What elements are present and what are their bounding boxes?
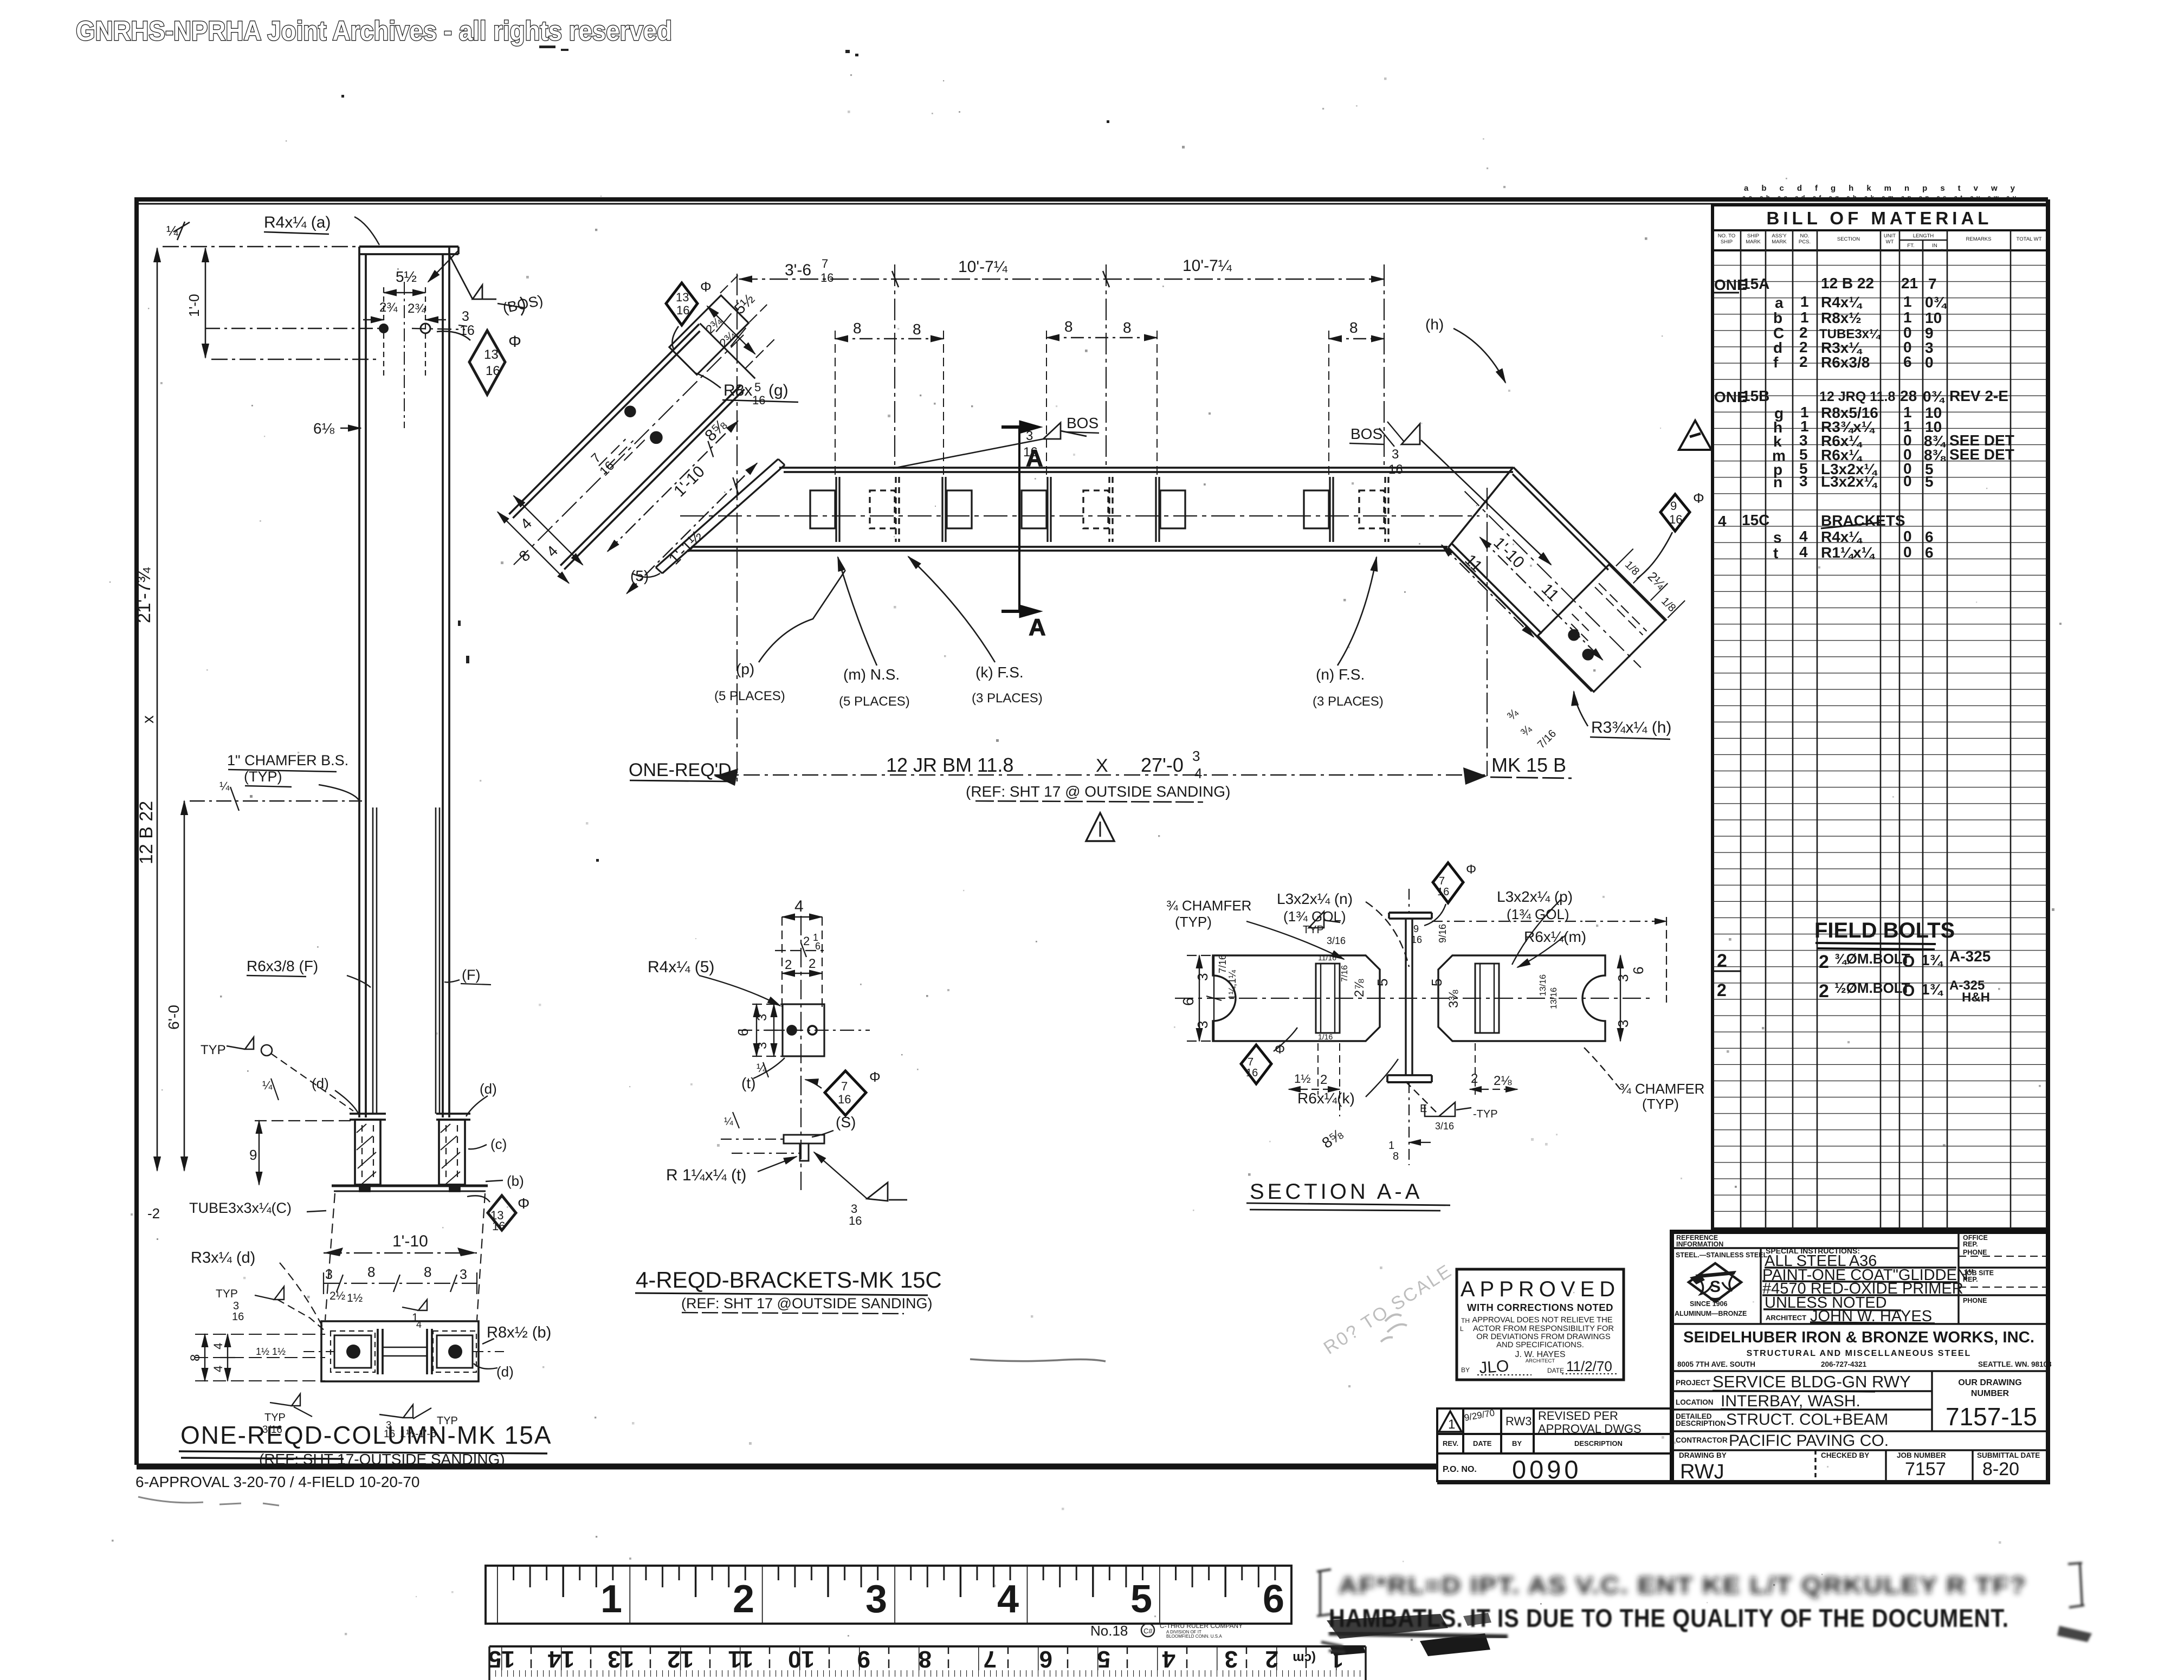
svg-text:13/16: 13/16 xyxy=(1539,974,1548,996)
svg-text:1: 1 xyxy=(1448,1417,1455,1432)
svg-text:JOHN W. HAYES: JOHN W. HAYES xyxy=(1810,1308,1932,1325)
svg-text:SINCE 1906: SINCE 1906 xyxy=(1690,1300,1728,1308)
svg-text:8: 8 xyxy=(367,1264,375,1280)
svg-text:HAMBATLS. IT IS DUE TO THE QUA: HAMBATLS. IT IS DUE TO THE QUALITY OF TH… xyxy=(1329,1604,2009,1632)
svg-text:-2: -2 xyxy=(147,1205,160,1222)
svg-text:3: 3 xyxy=(462,309,469,324)
svg-text:15C: 15C xyxy=(1742,512,1769,528)
svg-text:R8x: R8x xyxy=(723,382,752,399)
svg-text:2⅞: 2⅞ xyxy=(1352,979,1367,997)
svg-text:2½: 2½ xyxy=(329,1290,345,1302)
svg-text:3: 3 xyxy=(1026,429,1033,443)
svg-text:3: 3 xyxy=(460,1267,467,1282)
svg-text:12 B 22: 12 B 22 xyxy=(136,801,157,864)
svg-text:0: 0 xyxy=(1925,354,1934,371)
svg-text:NO. TO: NO. TO xyxy=(1718,233,1735,239)
svg-text:BOS: BOS xyxy=(1351,425,1382,442)
svg-text:16: 16 xyxy=(1437,886,1449,898)
svg-text:Φ: Φ xyxy=(508,333,521,351)
svg-text:12: 12 xyxy=(667,1646,694,1672)
svg-text:8: 8 xyxy=(1349,319,1358,336)
svg-text:PACIFIC PAVING CO.: PACIFIC PAVING CO. xyxy=(1729,1432,1889,1450)
svg-text:6: 6 xyxy=(1630,967,1646,974)
svg-text:8: 8 xyxy=(853,320,862,337)
svg-text:(5): (5) xyxy=(630,567,649,584)
svg-text:OUR DRAWING: OUR DRAWING xyxy=(1958,1378,2021,1387)
svg-text:7: 7 xyxy=(1439,875,1445,887)
svg-text:R4x¼ (a): R4x¼ (a) xyxy=(264,214,331,231)
svg-text:BY: BY xyxy=(1461,1366,1470,1374)
svg-text:BOS: BOS xyxy=(1067,415,1099,431)
svg-text:2¾: 2¾ xyxy=(408,301,426,316)
svg-text:UNIT: UNIT xyxy=(1884,233,1896,239)
svg-text:(cm: (cm xyxy=(1293,1651,1316,1665)
svg-text:12 JRQ 11.8: 12 JRQ 11.8 xyxy=(1819,389,1895,404)
svg-text:R4x¼: R4x¼ xyxy=(1821,528,1863,545)
svg-text:9/29/70: 9/29/70 xyxy=(1463,1407,1495,1423)
svg-text:1: 1 xyxy=(1903,309,1912,326)
svg-text:ARCHITECT: ARCHITECT xyxy=(1526,1358,1555,1364)
svg-text:4: 4 xyxy=(517,515,535,533)
svg-text:6⅛: 6⅛ xyxy=(313,420,335,437)
svg-text:SERVICE BLDG-GN RWY: SERVICE BLDG-GN RWY xyxy=(1713,1372,1911,1391)
svg-text:(F): (F) xyxy=(462,967,480,983)
svg-text:5: 5 xyxy=(754,380,761,394)
svg-text:6: 6 xyxy=(1263,1578,1284,1621)
svg-text:2: 2 xyxy=(1819,952,1829,972)
svg-text:REVISED PER: REVISED PER xyxy=(1538,1409,1618,1423)
svg-text:4: 4 xyxy=(1718,513,1727,529)
svg-text:14: 14 xyxy=(548,1646,574,1672)
svg-text:C-THRU RULER COMPANY: C-THRU RULER COMPANY xyxy=(1160,1622,1243,1630)
svg-text:7/16: 7/16 xyxy=(1340,965,1349,982)
svg-text:6: 6 xyxy=(815,941,820,952)
svg-text:1½: 1½ xyxy=(272,1346,286,1357)
svg-text:TYP: TYP xyxy=(216,1288,238,1300)
svg-text:4: 4 xyxy=(1162,1646,1175,1672)
svg-text:NUMBER: NUMBER xyxy=(1971,1389,2009,1398)
svg-text:10: 10 xyxy=(1925,309,1942,326)
svg-text:APPROVED: APPROVED xyxy=(1461,1277,1620,1301)
svg-text:¾ CHAMFER: ¾ CHAMFER xyxy=(1619,1081,1704,1097)
svg-text:STRUCTURAL AND MISCELLANEOUS S: STRUCTURAL AND MISCELLANEOUS STEEL xyxy=(1747,1349,1972,1358)
svg-text:3: 3 xyxy=(1392,447,1399,462)
svg-text:6: 6 xyxy=(1925,528,1934,545)
svg-text:SECTION A-A: SECTION A-A xyxy=(1250,1180,1423,1204)
svg-text:(c): (c) xyxy=(490,1136,507,1152)
svg-text:JOB NUMBER: JOB NUMBER xyxy=(1897,1451,1946,1459)
svg-text:R8x½: R8x½ xyxy=(1821,309,1862,326)
svg-text:R8x½ (b): R8x½ (b) xyxy=(487,1324,551,1341)
svg-text:2: 2 xyxy=(1320,1072,1327,1087)
svg-text:(S): (S) xyxy=(836,1114,856,1130)
svg-text:7157-15: 7157-15 xyxy=(1946,1403,2037,1431)
svg-text:L3x2x¼ (n): L3x2x¼ (n) xyxy=(1277,890,1353,907)
svg-text:R4x¼: R4x¼ xyxy=(1821,294,1863,311)
svg-text:6: 6 xyxy=(1180,997,1197,1006)
svg-text:R 1¼x¼ (t): R 1¼x¼ (t) xyxy=(666,1166,746,1184)
svg-text:Φ: Φ xyxy=(1275,1042,1285,1057)
svg-text:INFORMATION: INFORMATION xyxy=(1676,1240,1723,1248)
svg-text:16: 16 xyxy=(676,303,689,317)
svg-text:STEEL.—STAINLESS STEEL.: STEEL.—STAINLESS STEEL. xyxy=(1676,1251,1769,1259)
svg-text:5½: 5½ xyxy=(731,290,758,317)
svg-text:2: 2 xyxy=(1717,951,1727,971)
svg-text:2: 2 xyxy=(785,958,792,972)
svg-text:REMARKS: REMARKS xyxy=(1966,236,1992,242)
svg-text:SUBMITTAL DATE: SUBMITTAL DATE xyxy=(1977,1451,2040,1459)
svg-text:3'-6: 3'-6 xyxy=(785,261,811,279)
svg-text:¼: ¼ xyxy=(166,223,178,239)
svg-text:21: 21 xyxy=(1901,275,1918,292)
svg-text:LOCATION: LOCATION xyxy=(1676,1398,1714,1406)
svg-text:TOTAL WT: TOTAL WT xyxy=(2017,236,2042,242)
svg-text:(k) F.S.: (k) F.S. xyxy=(975,664,1024,681)
svg-text:TYP: TYP xyxy=(201,1043,226,1057)
svg-text:(p): (p) xyxy=(736,661,754,677)
svg-text:L: L xyxy=(1460,1325,1464,1333)
svg-text:Φ: Φ xyxy=(869,1069,881,1085)
svg-text:(REF: SHT 17-OUTSIDE SANDING): (REF: SHT 17-OUTSIDE SANDING) xyxy=(259,1451,505,1468)
svg-text:1: 1 xyxy=(1903,293,1912,310)
svg-text:1: 1 xyxy=(600,1578,622,1621)
svg-text:ARCHITECT: ARCHITECT xyxy=(1766,1314,1806,1322)
svg-text:s: s xyxy=(1773,529,1782,546)
svg-text:2: 2 xyxy=(733,1578,754,1621)
svg-text:1'-0: 1'-0 xyxy=(186,294,202,317)
svg-text:1'-10: 1'-10 xyxy=(1490,534,1528,572)
svg-text:R6x3/8 (F): R6x3/8 (F) xyxy=(247,958,318,974)
svg-text:1¼,1¼: 1¼,1¼ xyxy=(1227,970,1238,1000)
svg-text:3: 3 xyxy=(1615,974,1631,982)
svg-text:3: 3 xyxy=(1225,1646,1238,1672)
svg-text:3: 3 xyxy=(865,1578,887,1621)
svg-text:FT.: FT. xyxy=(1907,243,1914,249)
svg-text:DESCRIPTION: DESCRIPTION xyxy=(1676,1419,1726,1427)
svg-text:(1¾ GOL): (1¾ GOL) xyxy=(1283,908,1346,925)
svg-text:BILL OF MATERIAL: BILL OF MATERIAL xyxy=(1767,208,1993,228)
svg-text:8: 8 xyxy=(1064,318,1073,335)
svg-text:-TYP: -TYP xyxy=(1473,1108,1498,1120)
svg-text:BY: BY xyxy=(1512,1439,1522,1448)
svg-text:1'-10: 1'-10 xyxy=(670,462,708,500)
svg-text:3: 3 xyxy=(1194,973,1211,981)
svg-text:(TYP): (TYP) xyxy=(1642,1096,1679,1112)
svg-text:PROJECT: PROJECT xyxy=(1676,1379,1711,1387)
svg-text:JLO: JLO xyxy=(1478,1357,1509,1377)
svg-text:AND SPECIFICATIONS.: AND SPECIFICATIONS. xyxy=(1496,1341,1584,1349)
svg-text:R4x¼ (5): R4x¼ (5) xyxy=(648,958,714,976)
svg-text:7157: 7157 xyxy=(1905,1459,1946,1479)
svg-text:4: 4 xyxy=(416,1319,422,1330)
svg-text:16: 16 xyxy=(1023,445,1038,460)
svg-text:O: O xyxy=(1902,982,1915,1000)
svg-text:(d): (d) xyxy=(312,1075,329,1091)
svg-text:RW3: RW3 xyxy=(1505,1414,1532,1428)
svg-text:WITH CORRECTIONS NOTED: WITH CORRECTIONS NOTED xyxy=(1467,1302,1613,1313)
svg-text:2: 2 xyxy=(1799,353,1808,370)
svg-text:¾ØM.BOLT: ¾ØM.BOLT xyxy=(1834,951,1910,967)
svg-text:0: 0 xyxy=(1903,544,1912,560)
svg-text:APPROVAL DWGS: APPROVAL DWGS xyxy=(1538,1422,1642,1436)
svg-text:16: 16 xyxy=(1388,462,1403,477)
svg-text:6: 6 xyxy=(1903,353,1912,370)
svg-text:IN: IN xyxy=(1932,243,1937,249)
svg-text:1½: 1½ xyxy=(1294,1072,1311,1085)
svg-text:11: 11 xyxy=(1461,551,1485,576)
svg-text:ONE-REQD-COLUMN-MK 15A: ONE-REQD-COLUMN-MK 15A xyxy=(180,1421,552,1449)
svg-text:(1¾ GOL): (1¾ GOL) xyxy=(1507,906,1569,922)
svg-text:GNRHS-NPRHA Joint Archives - a: GNRHS-NPRHA Joint Archives - all rights … xyxy=(76,16,672,46)
svg-text:R3¾x¼ (h): R3¾x¼ (h) xyxy=(1591,719,1671,736)
svg-text:4: 4 xyxy=(1194,765,1202,781)
svg-text:1/8: 1/8 xyxy=(1623,559,1642,578)
svg-text:(REF: SHT 17 @ OUTSIDE SANDING: (REF: SHT 17 @ OUTSIDE SANDING) xyxy=(966,783,1230,800)
svg-text:8: 8 xyxy=(919,1646,932,1672)
svg-text:13: 13 xyxy=(484,347,499,362)
svg-text:3: 3 xyxy=(1194,1021,1211,1029)
svg-text:9/16: 9/16 xyxy=(1437,924,1448,943)
svg-text:ASS'Y: ASS'Y xyxy=(1772,233,1787,239)
svg-text:4: 4 xyxy=(794,897,804,915)
svg-text:1½: 1½ xyxy=(256,1346,269,1357)
svg-text:13/16: 13/16 xyxy=(1549,987,1559,1009)
svg-text:¼: ¼ xyxy=(219,779,230,793)
svg-text:H&H: H&H xyxy=(1962,990,1990,1005)
svg-text:(t): (t) xyxy=(741,1075,755,1091)
svg-text:2⅛: 2⅛ xyxy=(1494,1074,1512,1088)
svg-text:16: 16 xyxy=(492,1219,505,1233)
svg-text:3: 3 xyxy=(1192,748,1200,764)
svg-text:CONTRACTOR: CONTRACTOR xyxy=(1676,1436,1728,1444)
svg-text:11/16: 11/16 xyxy=(1318,953,1336,962)
svg-text:1/16: 1/16 xyxy=(1318,1032,1333,1041)
svg-text:15B: 15B xyxy=(1742,387,1769,404)
svg-text:PHONE: PHONE xyxy=(1963,1297,1987,1304)
svg-text:3: 3 xyxy=(233,1300,239,1312)
svg-text:x: x xyxy=(139,715,157,723)
svg-text:2¾: 2¾ xyxy=(717,328,739,350)
svg-text:RWJ: RWJ xyxy=(1680,1461,1724,1483)
svg-text:5: 5 xyxy=(1925,473,1934,490)
svg-text:(5 PLACES): (5 PLACES) xyxy=(839,694,910,709)
svg-text:2¾: 2¾ xyxy=(379,300,398,315)
svg-text:16: 16 xyxy=(486,364,500,378)
svg-text:10'-7¼: 10'-7¼ xyxy=(1183,257,1232,275)
svg-text:f: f xyxy=(1773,354,1779,371)
svg-text:DATE: DATE xyxy=(1473,1439,1492,1448)
svg-text:3: 3 xyxy=(1615,1020,1631,1028)
svg-text:n: n xyxy=(1773,474,1782,490)
svg-text:A-325: A-325 xyxy=(1949,948,1991,965)
svg-text:12 JR BM 11.8: 12 JR BM 11.8 xyxy=(886,754,1013,776)
svg-text:3: 3 xyxy=(755,1014,770,1021)
svg-text:SHIP: SHIP xyxy=(1721,239,1733,245)
svg-text:ALUMINUM—BRONZE: ALUMINUM—BRONZE xyxy=(1675,1310,1747,1317)
svg-text:REP.: REP. xyxy=(1963,1240,1978,1248)
svg-text:Φ: Φ xyxy=(1466,862,1476,877)
svg-text:ACTOR FROM RESPONSIBILITY FOR: ACTOR FROM RESPONSIBILITY FOR xyxy=(1473,1324,1614,1333)
svg-text:No.18: No.18 xyxy=(1090,1623,1128,1639)
svg-text:O: O xyxy=(1902,953,1915,971)
svg-text:L3x2x¼: L3x2x¼ xyxy=(1821,473,1878,490)
svg-text:R0? TO SCALE: R0? TO SCALE xyxy=(1320,1260,1456,1359)
svg-text:Φ: Φ xyxy=(700,279,712,295)
svg-text:5: 5 xyxy=(1374,979,1391,986)
svg-text:13: 13 xyxy=(608,1646,634,1672)
svg-text:¾: ¾ xyxy=(1518,722,1535,739)
svg-text:L3x2x¼ (p): L3x2x¼ (p) xyxy=(1497,888,1573,905)
svg-text:16: 16 xyxy=(849,1214,862,1227)
svg-text:Φ: Φ xyxy=(1693,490,1704,506)
svg-text:LENGTH: LENGTH xyxy=(1913,233,1934,239)
svg-text:1¾: 1¾ xyxy=(1921,981,1944,998)
svg-text:TYP: TYP xyxy=(1303,924,1324,936)
svg-text:2¾: 2¾ xyxy=(703,314,725,336)
svg-text:10: 10 xyxy=(788,1646,815,1672)
svg-text:OR DEVIATIONS FROM DRAWINGS: OR DEVIATIONS FROM DRAWINGS xyxy=(1476,1333,1611,1341)
svg-text:1: 1 xyxy=(1800,293,1809,310)
svg-text:11/2/70: 11/2/70 xyxy=(1566,1358,1612,1374)
svg-text:WT: WT xyxy=(1886,239,1894,245)
svg-text:SEATTLE. WN. 98108: SEATTLE. WN. 98108 xyxy=(1978,1360,2052,1368)
svg-text:DATE: DATE xyxy=(1547,1367,1564,1374)
svg-text:¼: ¼ xyxy=(724,1116,733,1128)
svg-text:SECTION: SECTION xyxy=(1837,236,1860,242)
svg-text:MK 15 B: MK 15 B xyxy=(1491,754,1566,776)
svg-text:4: 4 xyxy=(211,1366,225,1372)
svg-text:4-REQD-BRACKETS-MK 15C: 4-REQD-BRACKETS-MK 15C xyxy=(636,1267,942,1293)
svg-text:DESCRIPTION: DESCRIPTION xyxy=(1574,1439,1623,1448)
svg-text:R1¼x¼: R1¼x¼ xyxy=(1821,544,1876,561)
svg-text:9: 9 xyxy=(249,1147,257,1163)
svg-text:0090: 0090 xyxy=(1512,1455,1582,1484)
svg-text:2: 2 xyxy=(1471,1071,1478,1086)
svg-text:13: 13 xyxy=(676,290,689,304)
svg-text:X: X xyxy=(1096,755,1108,776)
svg-text:Φ: Φ xyxy=(518,1195,529,1212)
svg-text:16: 16 xyxy=(838,1093,851,1106)
svg-text:0¾: 0¾ xyxy=(1925,294,1948,311)
svg-text:2¼: 2¼ xyxy=(1645,569,1668,592)
svg-text:4: 4 xyxy=(1799,544,1808,560)
svg-text:A: A xyxy=(1029,614,1046,641)
svg-text:(3 PLACES): (3 PLACES) xyxy=(1313,694,1384,709)
svg-text:P.O. NO.: P.O. NO. xyxy=(1443,1465,1477,1474)
svg-text:DRAWING BY: DRAWING BY xyxy=(1679,1451,1727,1459)
svg-text:16: 16 xyxy=(820,271,833,285)
svg-text:(n) F.S.: (n) F.S. xyxy=(1316,666,1365,683)
svg-text:9: 9 xyxy=(857,1646,870,1672)
svg-text:STRUCT. COL+BEAM: STRUCT. COL+BEAM xyxy=(1726,1411,1888,1429)
svg-text:¾: ¾ xyxy=(1504,706,1521,722)
svg-text:6-APPROVAL 3-20-70 / 4-FIELD 1: 6-APPROVAL 3-20-70 / 4-FIELD 10-20-70 xyxy=(135,1474,419,1490)
svg-text:8⅝: 8⅝ xyxy=(1319,1126,1346,1152)
svg-text:PCS.: PCS. xyxy=(1799,239,1811,245)
svg-text:(d): (d) xyxy=(480,1081,497,1097)
svg-text:28: 28 xyxy=(1900,387,1917,404)
svg-text:7: 7 xyxy=(841,1080,848,1093)
svg-text:15A: 15A xyxy=(1742,275,1769,292)
svg-text:0: 0 xyxy=(1903,473,1912,489)
svg-text:(REF: SHT 17 @OUTSIDE SANDING): (REF: SHT 17 @OUTSIDE SANDING) xyxy=(681,1295,932,1311)
svg-text:1½: 1½ xyxy=(347,1292,363,1304)
svg-text:4: 4 xyxy=(211,1343,225,1349)
svg-text:0: 0 xyxy=(1903,528,1912,545)
svg-text:8: 8 xyxy=(1123,319,1132,336)
svg-text:3/16: 3/16 xyxy=(1327,935,1346,946)
svg-text:(b): (b) xyxy=(507,1173,524,1189)
svg-text:3: 3 xyxy=(1799,473,1808,489)
svg-text:11: 11 xyxy=(728,1646,753,1672)
svg-text:(d): (d) xyxy=(496,1364,514,1380)
svg-text:TUBE3x3x¼(C): TUBE3x3x¼(C) xyxy=(189,1200,292,1216)
svg-text:REV 2-E: REV 2-E xyxy=(1949,387,2008,404)
svg-text:AF*RL=D IPT. AS V.C. ENT KE L/: AF*RL=D IPT. AS V.C. ENT KE L/T QRKULEY … xyxy=(1339,1572,2027,1599)
svg-text:SEE DET: SEE DET xyxy=(1949,446,2014,463)
svg-text:SEIDELHUBER IRON & BRONZE: SEIDELHUBER IRON & BRONZE WORKS, INC. xyxy=(1683,1329,2034,1346)
svg-text:¼: ¼ xyxy=(262,1078,273,1092)
svg-text:8: 8 xyxy=(515,547,533,565)
svg-text:(h): (h) xyxy=(1425,316,1444,333)
svg-text:8005 7TH AVE. SOUTH: 8005 7TH AVE. SOUTH xyxy=(1677,1360,1755,1368)
svg-text:5: 5 xyxy=(1429,979,1445,986)
svg-text:5½: 5½ xyxy=(396,268,417,285)
svg-text:¾ CHAMFER: ¾ CHAMFER xyxy=(1166,897,1251,914)
svg-text:7/16: 7/16 xyxy=(1535,727,1559,751)
svg-text:11: 11 xyxy=(1538,580,1562,605)
svg-text:b: b xyxy=(1773,309,1782,326)
svg-text:9: 9 xyxy=(1413,923,1419,934)
svg-text:BLOOMFIELD CONN. U.S.A: BLOOMFIELD CONN. U.S.A xyxy=(1166,1634,1222,1639)
svg-text:½ØM.BOLT: ½ØM.BOLT xyxy=(1834,980,1910,996)
svg-text:2: 2 xyxy=(1265,1646,1278,1672)
svg-text:C#: C# xyxy=(1143,1627,1153,1635)
svg-text:1/8: 1/8 xyxy=(1659,595,1678,614)
svg-text:PHONE: PHONE xyxy=(1963,1249,1987,1256)
svg-text:8: 8 xyxy=(424,1264,431,1280)
svg-text:MARK: MARK xyxy=(1746,239,1761,245)
svg-text:6'-0: 6'-0 xyxy=(165,1005,182,1030)
svg-text:21'-7¾: 21'-7¾ xyxy=(134,567,154,623)
svg-text:ONE-REQ'D: ONE-REQ'D xyxy=(629,760,732,780)
svg-text:2: 2 xyxy=(803,934,810,948)
svg-text:6: 6 xyxy=(735,1029,751,1036)
svg-text:S: S xyxy=(1710,1278,1721,1296)
svg-text:INTERBAY, WASH.: INTERBAY, WASH. xyxy=(1721,1392,1860,1410)
svg-text:9: 9 xyxy=(1670,499,1677,513)
svg-text:12 B 22: 12 B 22 xyxy=(1821,275,1874,292)
svg-text:1: 1 xyxy=(1800,309,1809,326)
svg-text:R6x¼(k): R6x¼(k) xyxy=(1297,1090,1355,1107)
svg-text:206-727-4321: 206-727-4321 xyxy=(1821,1360,1867,1368)
svg-text:REV.: REV. xyxy=(1443,1439,1458,1448)
svg-text:6: 6 xyxy=(1039,1646,1052,1672)
svg-text:7: 7 xyxy=(1928,275,1937,292)
svg-text:(m) N.S.: (m) N.S. xyxy=(843,666,900,683)
svg-text:2: 2 xyxy=(1717,980,1727,1000)
svg-text:R6x¼(m): R6x¼(m) xyxy=(1524,928,1586,945)
svg-text:8: 8 xyxy=(913,321,921,338)
svg-text:7/16: 7/16 xyxy=(1217,954,1228,973)
svg-text:5: 5 xyxy=(1097,1646,1110,1672)
svg-text:5: 5 xyxy=(1130,1578,1152,1621)
svg-text:¼: ¼ xyxy=(757,1061,767,1075)
svg-text:2: 2 xyxy=(809,957,816,971)
svg-text:1'-10: 1'-10 xyxy=(392,1232,428,1250)
svg-text:16: 16 xyxy=(232,1311,244,1323)
svg-text:1" CHAMFER B.S.: 1" CHAMFER B.S. xyxy=(227,752,348,768)
